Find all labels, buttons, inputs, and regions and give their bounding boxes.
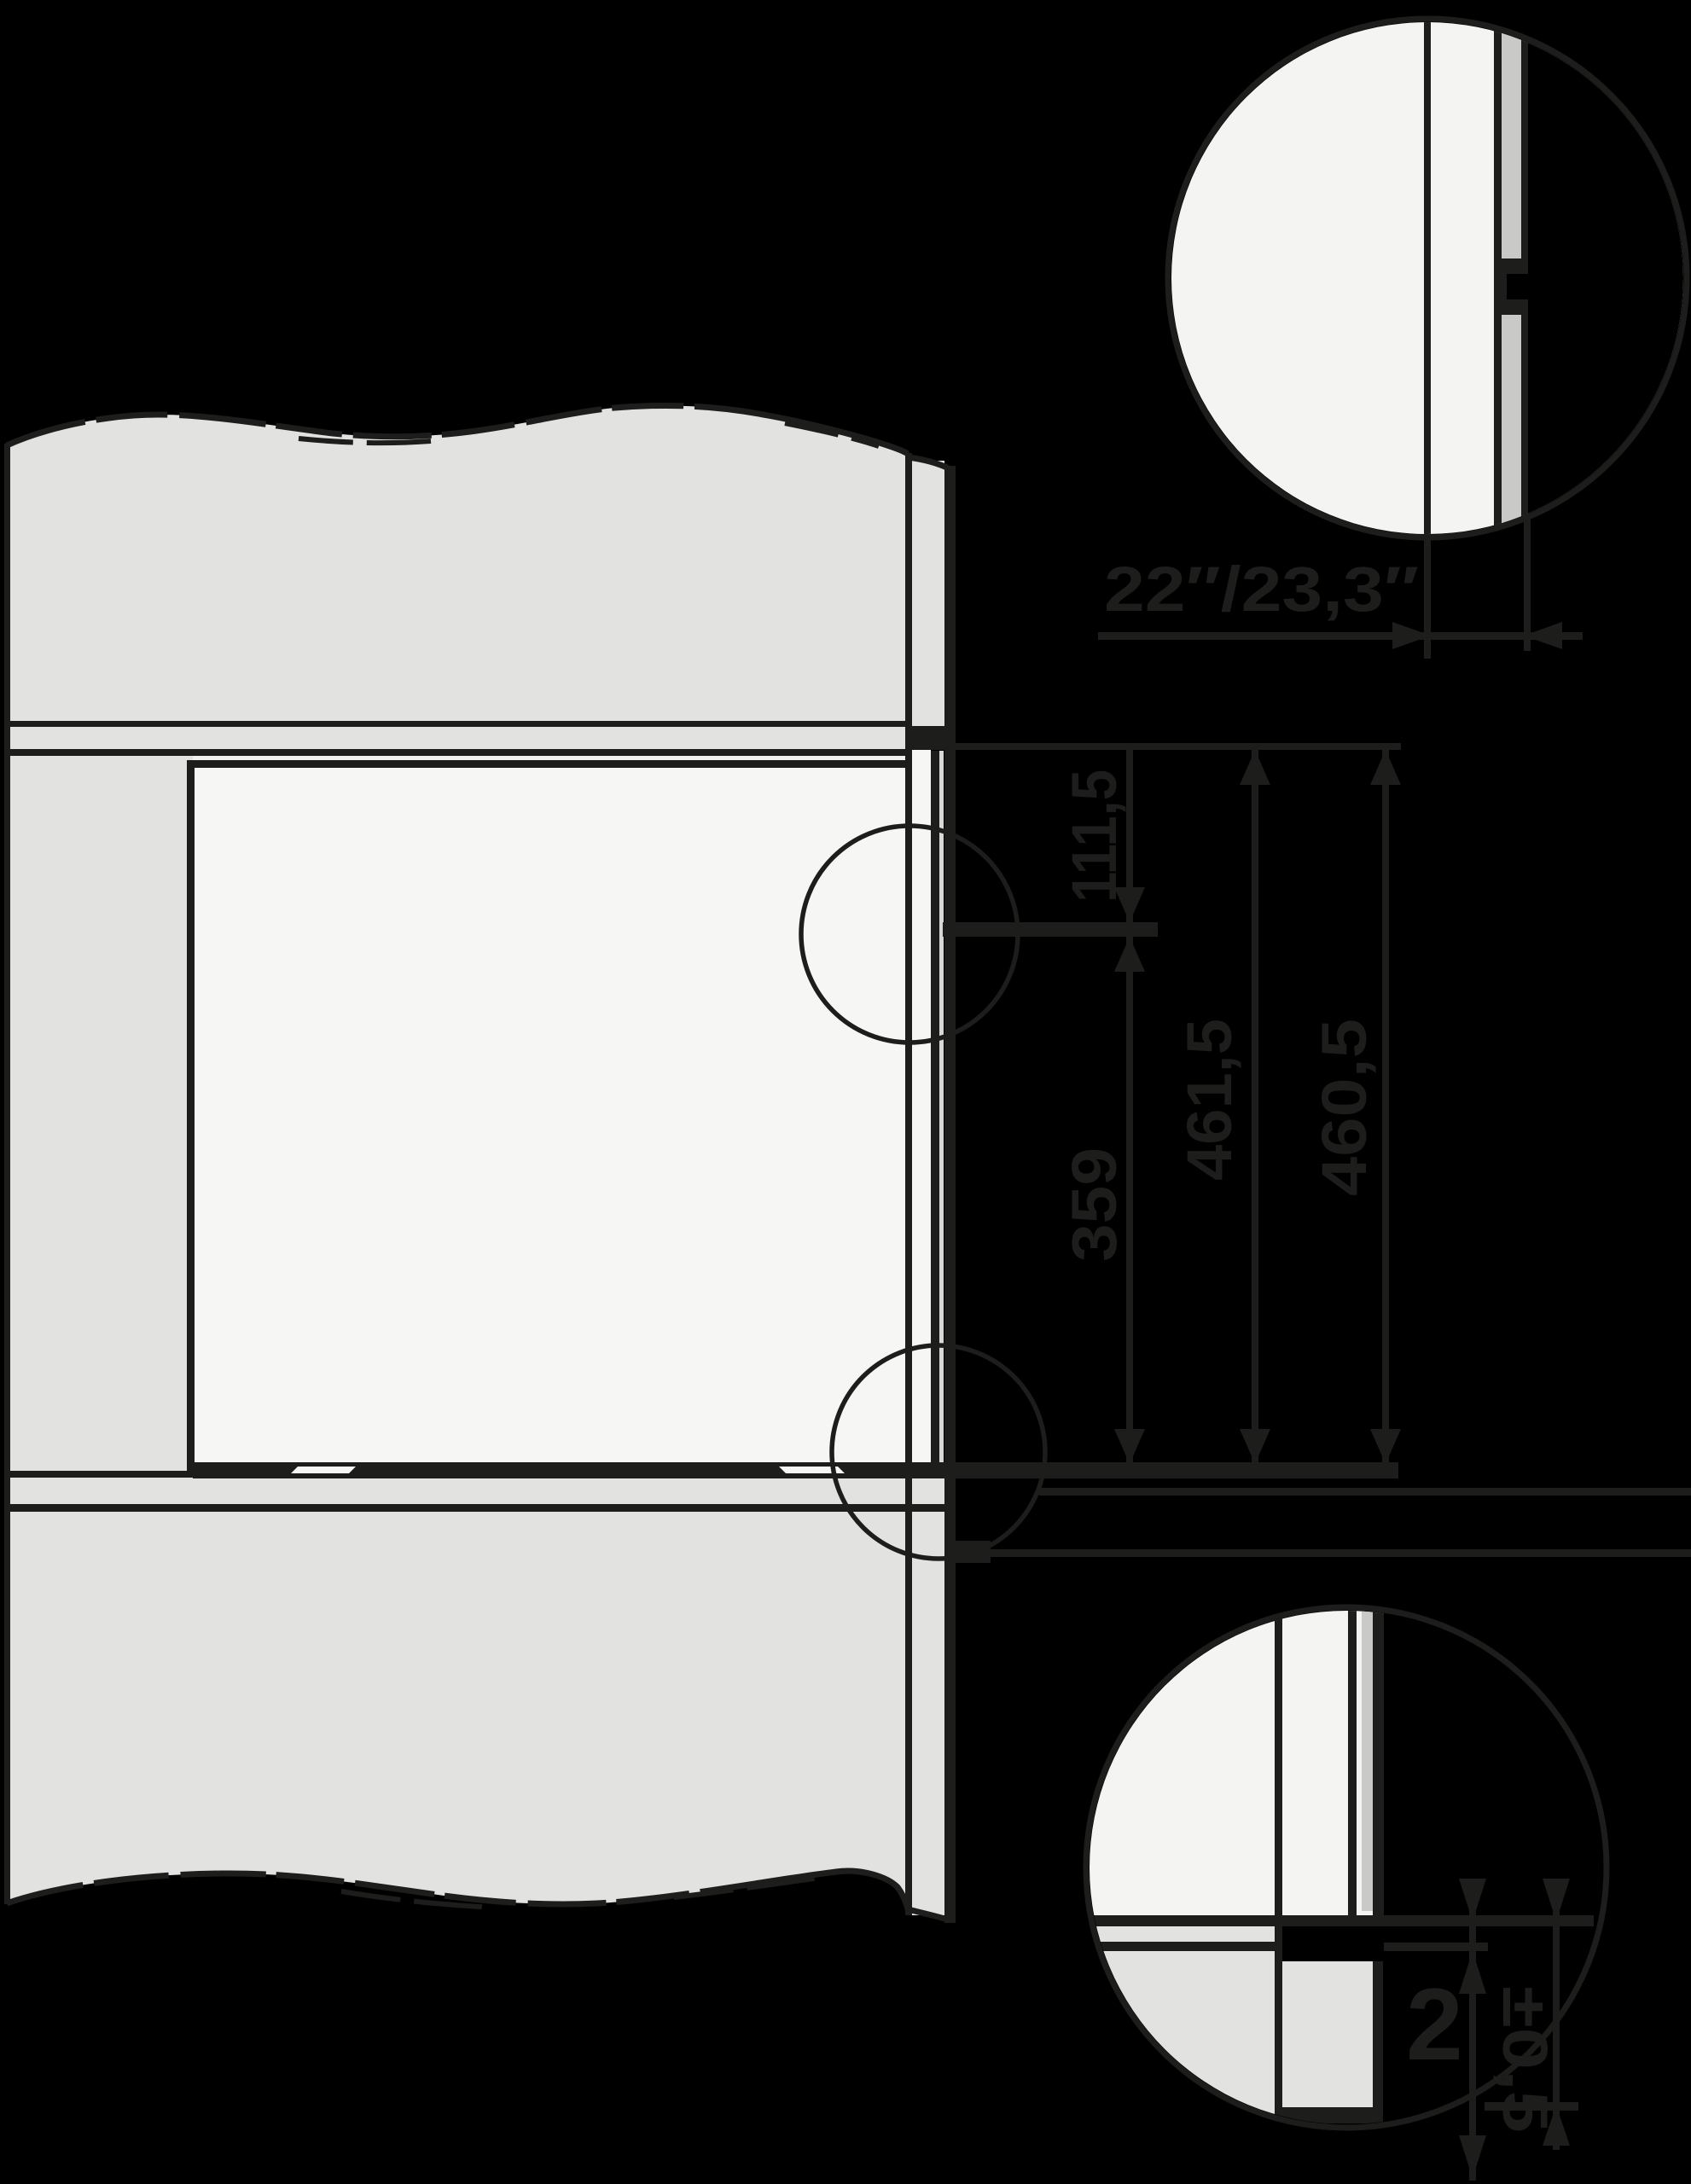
svg-text:111,5: 111,5 [1059, 770, 1130, 903]
svg-text:±0,5: ±0,5 [1490, 1986, 1560, 2133]
svg-text:22″/23,3″: 22″/23,3″ [1104, 554, 1419, 624]
svg-text:460,5: 460,5 [1309, 1019, 1380, 1196]
svg-text:2: 2 [1406, 1967, 1463, 2082]
svg-text:461,5: 461,5 [1174, 1019, 1245, 1181]
svg-text:359: 359 [1059, 1147, 1130, 1262]
